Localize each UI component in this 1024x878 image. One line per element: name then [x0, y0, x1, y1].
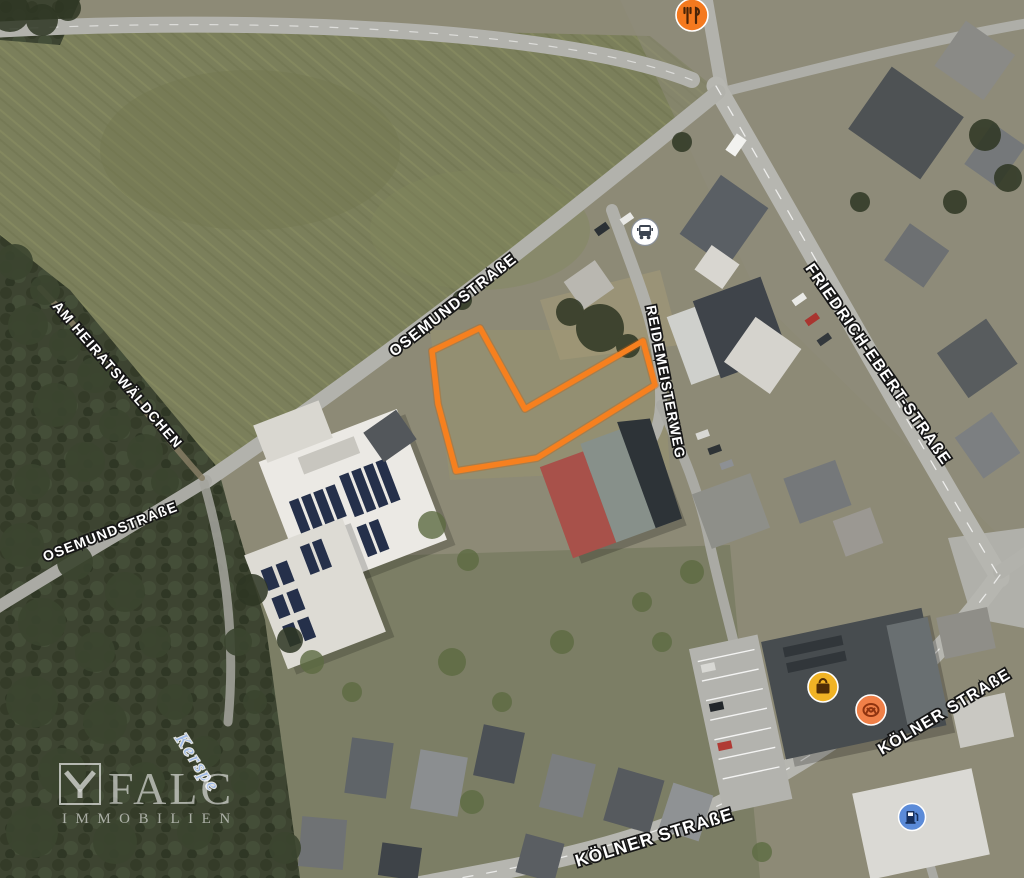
- satellite-map-canvas[interactable]: OSEMUNDSTRAßE AM HEIRATSWÄLDCHEN OSEMUND…: [0, 0, 1024, 878]
- poi-bus-stop[interactable]: [632, 219, 659, 246]
- bakery-icon: [856, 695, 886, 725]
- watermark-brand: FALC: [108, 763, 234, 814]
- poi-restaurant[interactable]: [676, 0, 708, 31]
- poi-fuel[interactable]: [899, 804, 926, 831]
- poi-bakery[interactable]: [856, 695, 886, 725]
- watermark-subtitle: IMMOBILIEN: [62, 811, 239, 827]
- restaurant-icon: [676, 0, 708, 31]
- poi-shopping[interactable]: [808, 672, 838, 702]
